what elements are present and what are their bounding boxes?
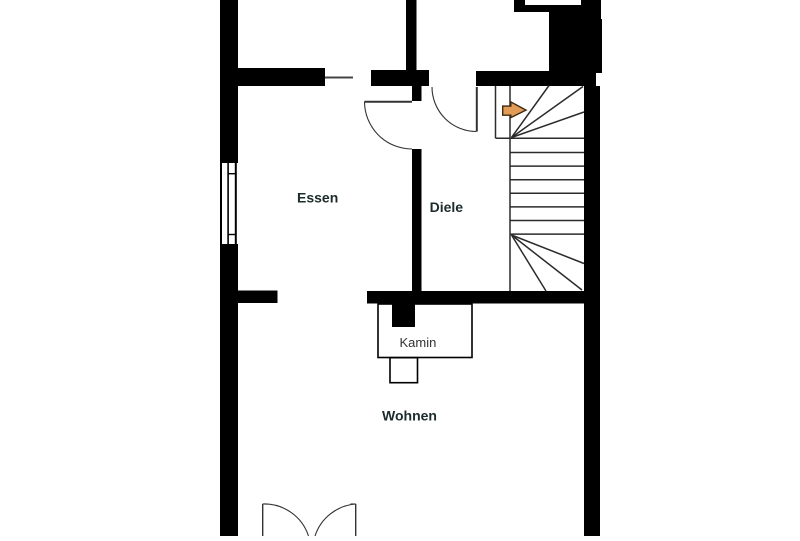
svg-text:Wohnen: Wohnen bbox=[382, 408, 437, 424]
svg-text:Diele: Diele bbox=[430, 199, 464, 215]
svg-text:Kamin: Kamin bbox=[400, 335, 437, 350]
svg-text:Essen: Essen bbox=[297, 189, 338, 205]
